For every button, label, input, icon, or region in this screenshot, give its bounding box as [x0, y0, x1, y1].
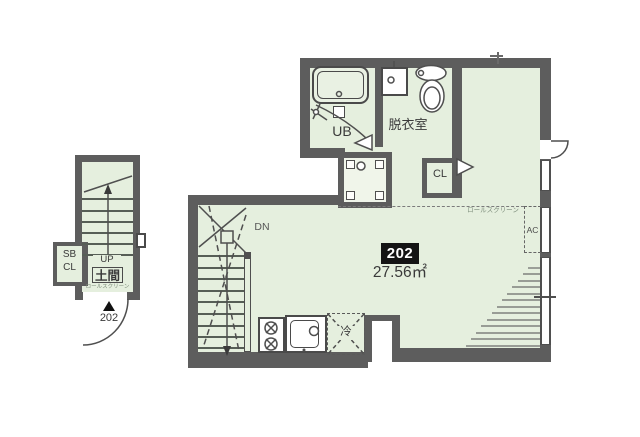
unit-bath-label: UB — [322, 123, 362, 139]
roll-screen-label-entry: ロールスクリーン — [84, 284, 131, 290]
doma-label: 土間 — [92, 267, 123, 283]
roll-screen-label-main: ロールスクリーン — [466, 207, 520, 214]
entry-unit-label: 202 — [94, 312, 124, 325]
entry-storage-label-2: CL — [56, 262, 83, 274]
unit-number-badge: 202 — [381, 243, 419, 264]
door-marker-icon — [457, 159, 473, 175]
door-swing-icon — [551, 141, 568, 158]
closet-label: CL — [425, 168, 455, 181]
washer-tap-icon — [357, 162, 365, 170]
entry-arrow-icon — [103, 301, 115, 311]
up-label: UP — [93, 255, 121, 266]
linework-overlay — [0, 0, 640, 437]
unit-area-label: 27.56㎡ — [352, 264, 448, 282]
floorplan-canvas: UB 脱衣室 CL DN AC ロールスクリーン 冷 202 27.56㎡ SB… — [0, 0, 640, 437]
toilet-icon — [416, 66, 446, 113]
fridge-label: 冷 — [338, 326, 354, 340]
sink-faucet-icon — [310, 327, 319, 336]
down-label: DN — [249, 221, 275, 233]
stove-burners-icon — [265, 322, 277, 350]
tub-drain-icon — [337, 92, 342, 97]
entry-storage-label-1: SB — [56, 249, 83, 261]
sloped-ceiling-hatch — [466, 268, 540, 346]
dressing-room-label: 脱衣室 — [382, 118, 434, 133]
shower-faucet-icon — [311, 104, 327, 120]
ac-label: AC — [524, 226, 541, 236]
